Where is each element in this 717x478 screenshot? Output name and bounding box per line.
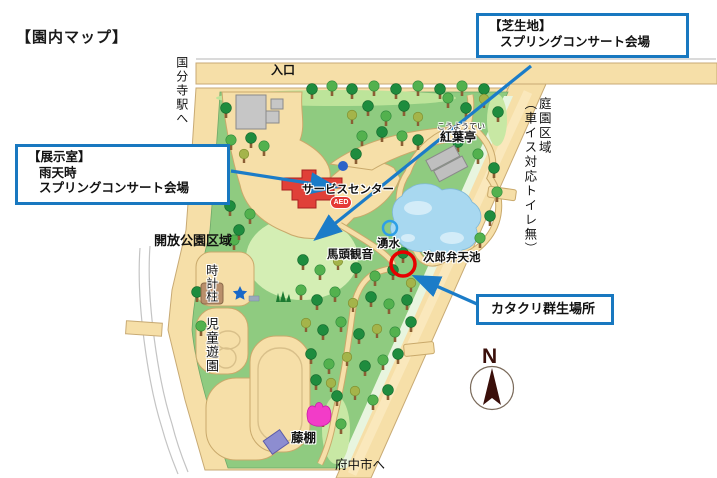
callout-exhibit-room: 【展示室】 雨天時 スプリングコンサート会場 xyxy=(15,144,230,205)
garden-zone-title: 庭園区域 xyxy=(536,97,550,257)
tulip-icon xyxy=(307,403,331,427)
label-entrance: 入口 xyxy=(271,64,295,78)
label-jiro-benten-pond: 次郎弁天池 xyxy=(423,252,481,265)
label-spring-water: 湧水 xyxy=(377,238,400,251)
label-childrens-playground: 児童遊園 xyxy=(203,317,218,373)
label-service-center: サービスセンター xyxy=(302,184,394,197)
park-map-page: 【園内マップ】 入口 国分寺駅へ 庭園区域 （車イス対応トイレ無） 開放公園区域… xyxy=(0,0,717,478)
callout-lawn-venue: 【芝生地】 スプリングコンサート会場 xyxy=(476,13,689,58)
label-koyotei: 紅葉亭 xyxy=(440,131,476,145)
left-road-stub xyxy=(126,321,163,336)
label-wisteria-trellis: 藤棚 xyxy=(291,431,316,445)
label-to-fuchu-city: 府中市へ xyxy=(335,458,385,472)
park-map-illustration xyxy=(0,0,717,478)
compass-icon xyxy=(471,367,514,410)
compass-north-label: N xyxy=(482,345,497,369)
north-needle-icon xyxy=(483,368,501,405)
map-dot-icon xyxy=(338,161,348,171)
callout-lawn-body: スプリングコンサート会場 xyxy=(489,35,678,51)
callout-exhibit-line2: スプリングコンサート会場 xyxy=(28,181,219,197)
label-bato-kannon: 馬頭観音 xyxy=(327,249,373,262)
label-garden-zone: 庭園区域 （車イス対応トイレ無） xyxy=(522,97,551,257)
callout-katakuri-label: カタクリ群生場所 xyxy=(491,301,605,317)
label-open-park-zone: 開放公園区域 xyxy=(154,234,232,249)
callout-exhibit-heading: 【展示室】 xyxy=(28,150,219,166)
callout-exhibit-line1: 雨天時 xyxy=(28,166,219,182)
page-title: 【園内マップ】 xyxy=(16,29,128,46)
aed-badge: AED xyxy=(330,196,352,209)
callout-katakuri: カタクリ群生場所 xyxy=(476,294,614,325)
label-clock-pillar: 時計柱 xyxy=(204,264,218,303)
callout-lawn-heading: 【芝生地】 xyxy=(489,19,678,35)
garden-zone-note: （車イス対応トイレ無） xyxy=(522,97,536,257)
label-to-kokubunji-station: 国分寺駅へ xyxy=(174,56,188,126)
